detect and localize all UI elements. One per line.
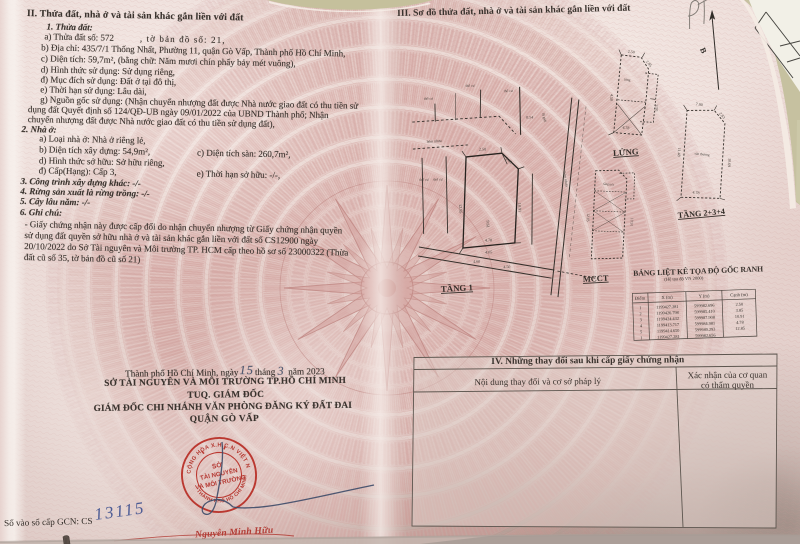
svg-text:4.78: 4.78 [692,189,699,195]
svg-text:10.91: 10.91 [517,203,523,213]
svg-text:TẦNG 1: TẦNG 1 [441,282,473,294]
svg-text:Cạnh (m): Cạnh (m) [730,292,748,298]
svg-text:2.85: 2.85 [645,59,653,68]
svg-text:thổ cư: thổ cư [433,176,443,181]
svg-text:thổ cư: thổ cư [424,96,434,101]
svg-text:10.91: 10.91 [735,314,745,319]
svg-text:1199426.798: 1199426.798 [656,310,679,316]
svg-text:thổ cư: thổ cư [419,177,429,182]
svg-text:5: 5 [640,329,642,334]
svg-text:12.85: 12.85 [586,213,590,222]
svg-text:Điểm: Điểm [635,296,646,301]
svg-text:4.05: 4.05 [485,249,492,254]
svg-text:599980.293: 599980.293 [695,327,716,333]
svg-text:2.50: 2.50 [735,302,743,307]
svg-text:lộ giới: lộ giới [541,113,547,123]
svg-text:2.50: 2.50 [627,49,635,55]
svg-text:4.78: 4.78 [736,320,744,325]
svg-text:1199427.281: 1199427.281 [657,334,680,340]
svg-text:hẻm nhựa: hẻm nhựa [427,139,443,144]
svg-text:7.80: 7.80 [696,101,703,107]
svg-text:599987.908: 599987.908 [694,315,715,321]
svg-text:Y (m): Y (m) [698,293,710,298]
svg-text:2.50: 2.50 [479,147,486,152]
svg-text:4.78: 4.78 [485,237,492,242]
svg-text:10.91: 10.91 [629,218,633,227]
svg-text:thổ cư: thổ cư [504,88,514,93]
svg-text:10.69: 10.69 [727,158,732,167]
svg-text:4.60: 4.60 [473,259,480,264]
svg-text:tầng trệt: tầng trệt [603,182,614,187]
svg-text:sân thượng: sân thượng [694,151,710,157]
svg-text:599982.656: 599982.656 [695,333,716,339]
svg-text:3: 3 [640,317,642,322]
svg-text:2: 2 [639,311,641,316]
svg-text:3.85: 3.85 [736,308,744,313]
svg-text:1: 1 [639,305,641,310]
svg-text:0.54: 0.54 [526,115,533,120]
svg-text:LỬNG: LỬNG [613,146,639,158]
svg-text:599984.981: 599984.981 [695,321,716,327]
svg-text:9.61: 9.61 [485,220,490,228]
svg-text:2.83: 2.83 [718,111,726,120]
svg-text:1199414.650: 1199414.650 [657,328,680,334]
svg-text:4.50: 4.50 [503,264,510,269]
svg-text:3.95: 3.95 [654,104,659,111]
svg-text:11.48: 11.48 [677,148,682,157]
svg-text:1: 1 [640,335,642,340]
svg-text:TẦNG 2+3+4: TẦNG 2+3+4 [677,206,725,220]
svg-text:599982.696: 599982.696 [694,303,715,309]
svg-text:lửng: lửng [624,77,631,82]
svg-text:4: 4 [640,323,643,328]
svg-text:1199427.281: 1199427.281 [656,304,679,310]
svg-text:X (m): X (m) [661,295,673,300]
svg-text:599985.410: 599985.410 [694,309,715,315]
svg-text:12.85: 12.85 [458,204,464,214]
svg-text:4.50: 4.50 [609,94,614,101]
svg-text:B: B [698,46,709,55]
svg-text:MCCT: MCCT [583,274,609,284]
svg-text:thổ cư: thổ cư [465,83,475,88]
svg-text:4.78: 4.78 [622,125,630,131]
svg-text:12.85: 12.85 [735,326,745,331]
svg-text:1199424.432: 1199424.432 [656,316,679,322]
svg-text:1199413.717: 1199413.717 [657,322,680,328]
